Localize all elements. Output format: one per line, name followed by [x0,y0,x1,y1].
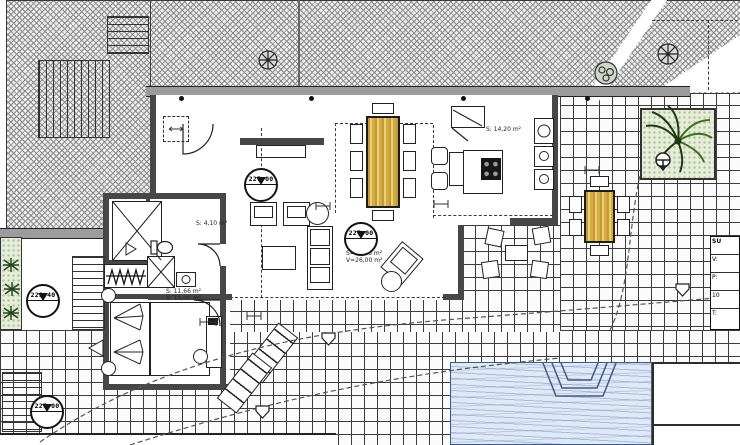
dining-chair [350,151,363,171]
bedroom-area-s: S: 11,66 m² [166,288,201,295]
bath-area-label: S: 4,10 m² [196,220,227,227]
boundary-dashed-h [652,20,738,21]
column-dot [585,96,590,101]
kitchen-chair [431,172,448,190]
legend-row: 10 [711,291,739,309]
vanity-sink [176,272,196,287]
benchmark-triangle-icon [256,177,266,204]
kitchen-appliance [534,118,554,144]
roof-joint-line [298,0,300,90]
wall-bedroom-bottom [103,384,230,390]
kitchen-dashed-bottom [433,215,553,216]
legend-box: SU V: P: 10 T: [710,236,740,330]
floor-plan-canvas: SU V: P: 10 T: S: 14,20 m² S=41,35 m² V=… [0,0,740,445]
wall-living-left [150,95,156,195]
benchmark-triangle-icon [42,404,52,431]
fireplace-niche [256,145,306,158]
patio-chair [484,227,504,247]
legend-row: SU [711,237,739,255]
dining-chair [350,178,363,198]
outdoor-chair [569,196,582,213]
patio-chair [481,260,500,279]
bed [110,302,210,376]
kitchen-sideboard [451,106,485,128]
round-side-table [306,202,329,225]
benchmark-triangle-icon [38,293,48,320]
armchair [250,202,277,226]
dining-chair [403,178,416,198]
outdoor-chair [617,196,630,213]
sofa [307,226,333,290]
plan-bottom-margin [0,433,336,445]
wall-kitchen-bottom [510,218,558,225]
dining-chair-head [372,103,394,114]
benchmark-triangle-icon [356,231,366,258]
legend-row: P: [711,273,739,291]
dining-chair [350,124,363,144]
shower-box [147,256,175,288]
outdoor-chair-head [590,245,609,256]
wall-bath-top [103,193,226,199]
stair-void-box [112,201,162,261]
patio-table [505,245,528,261]
legend-row: T: [711,309,739,327]
desk-chair [193,349,208,364]
dining-chair [403,151,416,171]
round-side-table [381,271,402,292]
wardrobe [104,264,148,288]
nightstand [101,361,116,376]
dining-chair [403,124,416,144]
legend-row: V: [711,255,739,273]
dining-table [366,116,400,208]
wall-living-right-lower [458,225,464,300]
elevation-marker-upper-terrace: 229.40 [26,284,60,318]
outdoor-chair-head [590,176,609,187]
cooktop [481,158,501,180]
bedroom-area-v: V: 10,00 m² [166,295,201,302]
skylight-dashed-box [163,116,189,142]
outdoor-chair [569,219,582,236]
living-area-v: V=26,00 m² [346,257,382,264]
kitchen-sink [534,146,554,167]
kitchen-chair [431,147,448,165]
wall-entry-stub [240,138,324,145]
dining-chair-head [372,210,394,221]
column-dot [179,96,184,101]
bedroom-area-label: S: 11,66 m² V: 10,00 m² [166,288,201,302]
patio-chair [530,260,549,279]
desk-lamp [208,318,218,325]
elevation-marker-entry: 227.00 [244,168,278,202]
elevation-marker-lower-terrace: 227.00 [30,395,64,429]
roof-stair-upper [107,16,149,54]
kitchen-area-label: S: 14,20 m² [486,126,521,133]
nightstand [101,288,116,303]
bed-fold-line [149,303,151,375]
pool-deck [652,362,740,445]
coffee-table [262,246,296,270]
palm-planter [640,108,716,180]
glass-wall-living [230,297,445,298]
column-dot [309,96,314,101]
roof-stair-lower [38,60,110,138]
outdoor-chair [617,219,630,236]
elevation-marker-living: 227.00 [344,222,378,256]
patio-chair [532,226,552,246]
kitchen-sink [534,169,554,190]
pool-deck-line [652,424,740,426]
boundary-dashed-v [708,20,709,90]
planter-strip-left [0,237,22,330]
dining-dashed-left [335,123,336,213]
swimming-pool [450,362,652,445]
outdoor-table [584,190,615,243]
courtyard-stair [72,256,105,330]
kitchen-small-table [449,152,464,186]
column-dot [461,96,466,101]
